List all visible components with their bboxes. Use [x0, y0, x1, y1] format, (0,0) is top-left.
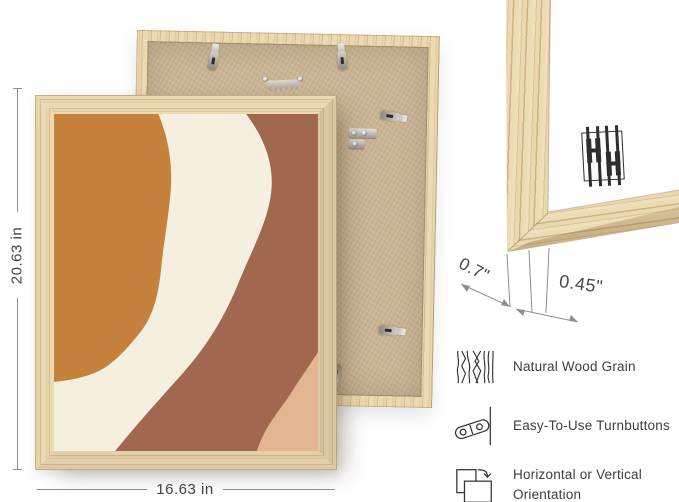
feature-list: Natural Wood Grain Easy-To-Use Turnbutto… — [452, 344, 674, 502]
front-frame — [35, 95, 337, 470]
abstract-artwork — [54, 114, 318, 451]
closeup-mat-area — [430, 0, 679, 226]
height-dimension-tick — [13, 469, 22, 470]
turnbutton-clip — [335, 43, 348, 71]
height-dimension-line — [17, 298, 18, 470]
frame-rail-right — [318, 95, 337, 470]
wood-grain-icon — [452, 344, 498, 390]
feature-item: Easy-To-Use Turnbuttons — [452, 403, 674, 449]
feature-item: Horizontal or Vertical Orientation — [452, 462, 674, 502]
closeup-frame-vertical-rail — [505, 0, 551, 253]
turnbutton-clip — [378, 324, 406, 337]
corner-hanger-bracket — [348, 128, 377, 159]
height-dimension-tick — [13, 88, 22, 89]
feature-label: Easy-To-Use Turnbuttons — [513, 416, 670, 436]
brand-logo-icon — [580, 122, 626, 190]
frame-rail-bottom — [35, 451, 337, 470]
width-dimension-label: 16.63 in — [147, 481, 223, 498]
frame-corner-closeup: 0.7" 0.45" — [430, 0, 679, 330]
depth-dimension-label: 0.7" — [448, 250, 500, 290]
feature-item: Natural Wood Grain — [452, 344, 674, 390]
face-width-dimension-label: 0.45" — [549, 270, 613, 299]
frame-rail-top — [35, 95, 337, 114]
feature-label: Horizontal or Vertical Orientation — [513, 465, 674, 502]
height-dimension-label: 20.63 in — [9, 216, 26, 296]
orientation-icon — [452, 462, 498, 502]
frame-rail-left — [35, 95, 54, 470]
screw-icon — [263, 77, 268, 82]
height-dimension-line — [17, 88, 18, 212]
screw-icon — [298, 76, 303, 81]
turnbutton-icon — [452, 403, 498, 449]
product-dimension-diagram: 20.63 in 16.63 in — [0, 0, 679, 502]
width-dimension-line — [37, 489, 147, 490]
width-dimension-line — [223, 489, 335, 490]
feature-label: Natural Wood Grain — [513, 357, 636, 377]
